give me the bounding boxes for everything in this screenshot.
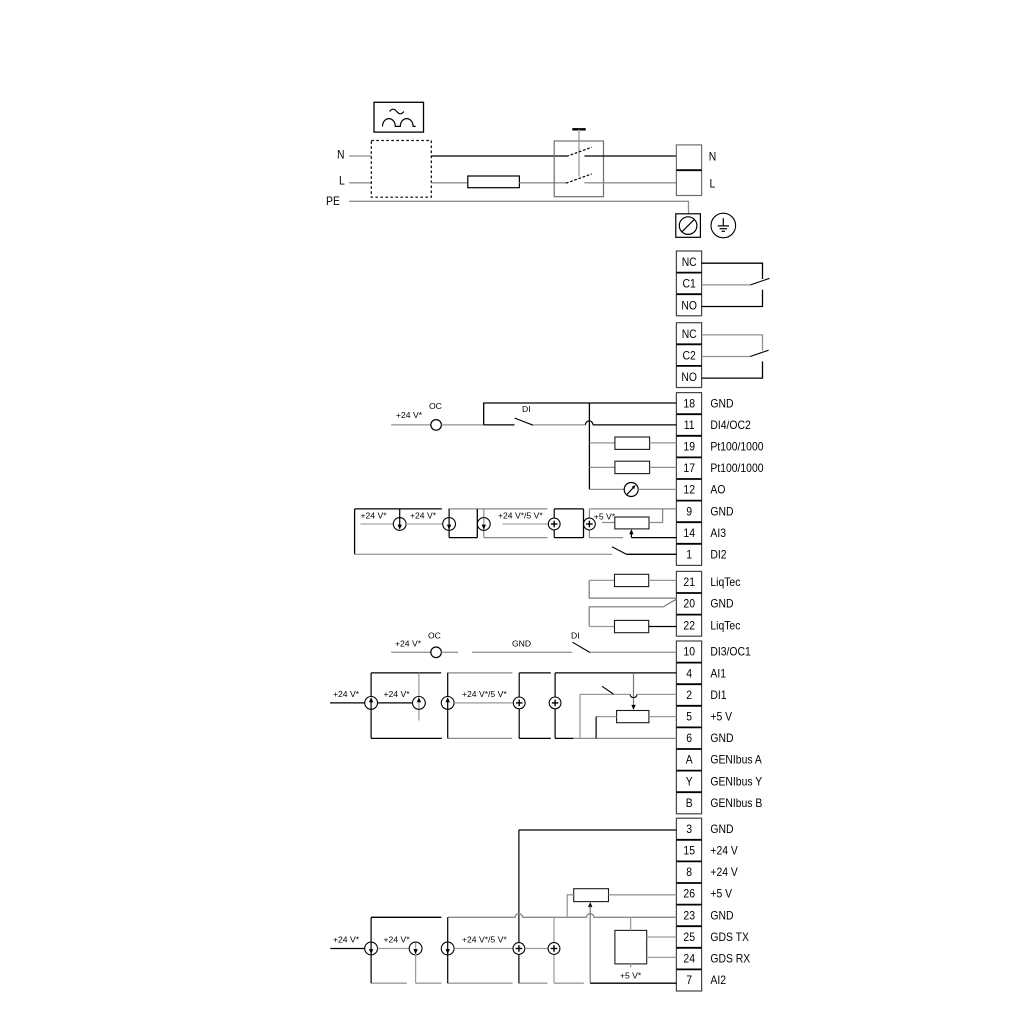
svg-text:14: 14 [683,526,695,540]
svg-text:DI: DI [522,404,531,414]
svg-text:GND: GND [710,731,733,745]
svg-text:+24 V*: +24 V* [395,639,422,649]
svg-text:+24 V*: +24 V* [361,511,388,521]
svg-text:+5 V: +5 V [710,887,732,901]
svg-text:5: 5 [686,710,692,724]
svg-text:19: 19 [683,440,695,454]
svg-text:+24 V*: +24 V* [410,511,437,521]
svg-text:6: 6 [686,731,692,745]
svg-text:+24 V: +24 V [710,865,738,879]
svg-text:12: 12 [683,483,695,497]
svg-text:B: B [686,796,693,810]
svg-text:NC: NC [682,327,697,341]
svg-text:+24 V*/5 V*: +24 V*/5 V* [498,511,543,521]
svg-text:GDS TX: GDS TX [710,930,749,944]
svg-text:LiqTec: LiqTec [710,618,740,632]
svg-text:1: 1 [686,548,692,562]
svg-text:N: N [709,150,717,164]
svg-text:11: 11 [684,418,695,432]
svg-text:7: 7 [686,973,692,987]
svg-text:Y: Y [686,774,693,788]
svg-text:AI2: AI2 [710,973,726,987]
svg-text:+24 V: +24 V [710,844,738,858]
svg-text:22: 22 [683,618,695,632]
svg-text:GENIbus B: GENIbus B [710,796,762,810]
svg-text:21: 21 [683,575,695,589]
svg-text:GND: GND [710,597,733,611]
svg-text:Pt100/1000: Pt100/1000 [710,461,763,475]
svg-text:C1: C1 [683,277,696,291]
svg-text:NC: NC [682,255,697,269]
svg-text:+5 V*: +5 V* [620,970,642,980]
svg-text:+24 V*: +24 V* [333,689,360,699]
svg-text:GND: GND [710,908,733,922]
svg-text:4: 4 [686,666,692,680]
svg-text:GND: GND [512,639,531,649]
svg-text:17: 17 [683,461,695,475]
svg-text:DI4/OC2: DI4/OC2 [710,418,750,432]
svg-text:+24 V*: +24 V* [384,935,411,945]
svg-text:25: 25 [683,930,695,944]
svg-text:+5 V*: +5 V* [594,512,616,522]
svg-text:DI2: DI2 [710,548,726,562]
svg-text:OC: OC [429,401,442,411]
svg-text:DI3/OC1: DI3/OC1 [710,645,750,659]
svg-text:AO: AO [710,483,725,497]
svg-text:C2: C2 [683,348,696,362]
svg-text:GDS RX: GDS RX [710,952,750,966]
svg-text:GENIbus A: GENIbus A [710,753,762,767]
svg-text:+5 V: +5 V [710,710,732,724]
svg-text:+24 V*/5 V*: +24 V*/5 V* [462,935,507,945]
svg-text:10: 10 [683,645,695,659]
svg-text:AI1: AI1 [710,666,726,680]
svg-text:N: N [337,148,345,162]
svg-text:+24 V*/5 V*: +24 V*/5 V* [462,689,507,699]
svg-text:+24 V*: +24 V* [333,935,360,945]
svg-text:OC: OC [428,631,441,641]
svg-text:9: 9 [686,504,692,518]
svg-text:GND: GND [710,396,733,410]
svg-text:+24 V*: +24 V* [396,410,423,420]
svg-text:AI3: AI3 [710,526,726,540]
svg-text:8: 8 [686,865,692,879]
svg-text:DI: DI [571,631,580,641]
svg-text:23: 23 [683,908,695,922]
svg-text:15: 15 [683,844,695,858]
svg-text:PE: PE [326,194,340,208]
svg-text:GND: GND [710,822,733,836]
svg-text:20: 20 [683,597,695,611]
svg-text:DI1: DI1 [710,688,726,702]
svg-text:L: L [339,174,345,188]
svg-text:A: A [686,753,693,767]
svg-text:+24 V*: +24 V* [384,689,411,699]
svg-text:Pt100/1000: Pt100/1000 [710,440,763,454]
svg-text:LiqTec: LiqTec [710,575,740,589]
svg-text:24: 24 [683,952,695,966]
svg-text:GND: GND [710,504,733,518]
svg-text:NO: NO [681,370,697,384]
svg-text:18: 18 [683,396,695,410]
svg-text:2: 2 [686,688,692,702]
svg-text:26: 26 [683,887,695,901]
svg-text:3: 3 [686,822,692,836]
svg-text:GENIbus Y: GENIbus Y [710,774,762,788]
svg-text:L: L [710,177,716,191]
svg-text:NO: NO [681,298,697,312]
